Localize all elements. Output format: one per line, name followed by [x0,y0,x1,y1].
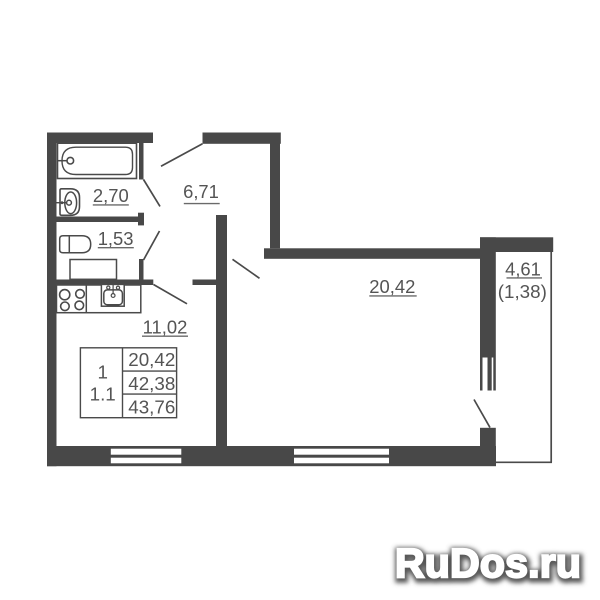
svg-text:(1,38): (1,38) [498,281,547,302]
svg-text:20,42: 20,42 [128,349,175,370]
svg-text:6,71: 6,71 [183,181,219,202]
svg-text:42,38: 42,38 [128,373,175,394]
svg-text:2,70: 2,70 [93,185,129,206]
svg-text:11,02: 11,02 [143,316,188,337]
svg-text:1,53: 1,53 [98,228,134,249]
svg-text:1: 1 [97,362,107,383]
svg-text:1.1: 1.1 [90,383,116,404]
svg-text:RuDos.ru: RuDos.ru [395,540,581,586]
svg-text:20,42: 20,42 [369,276,415,297]
svg-text:4,61: 4,61 [505,258,541,279]
svg-text:43,76: 43,76 [128,396,175,417]
